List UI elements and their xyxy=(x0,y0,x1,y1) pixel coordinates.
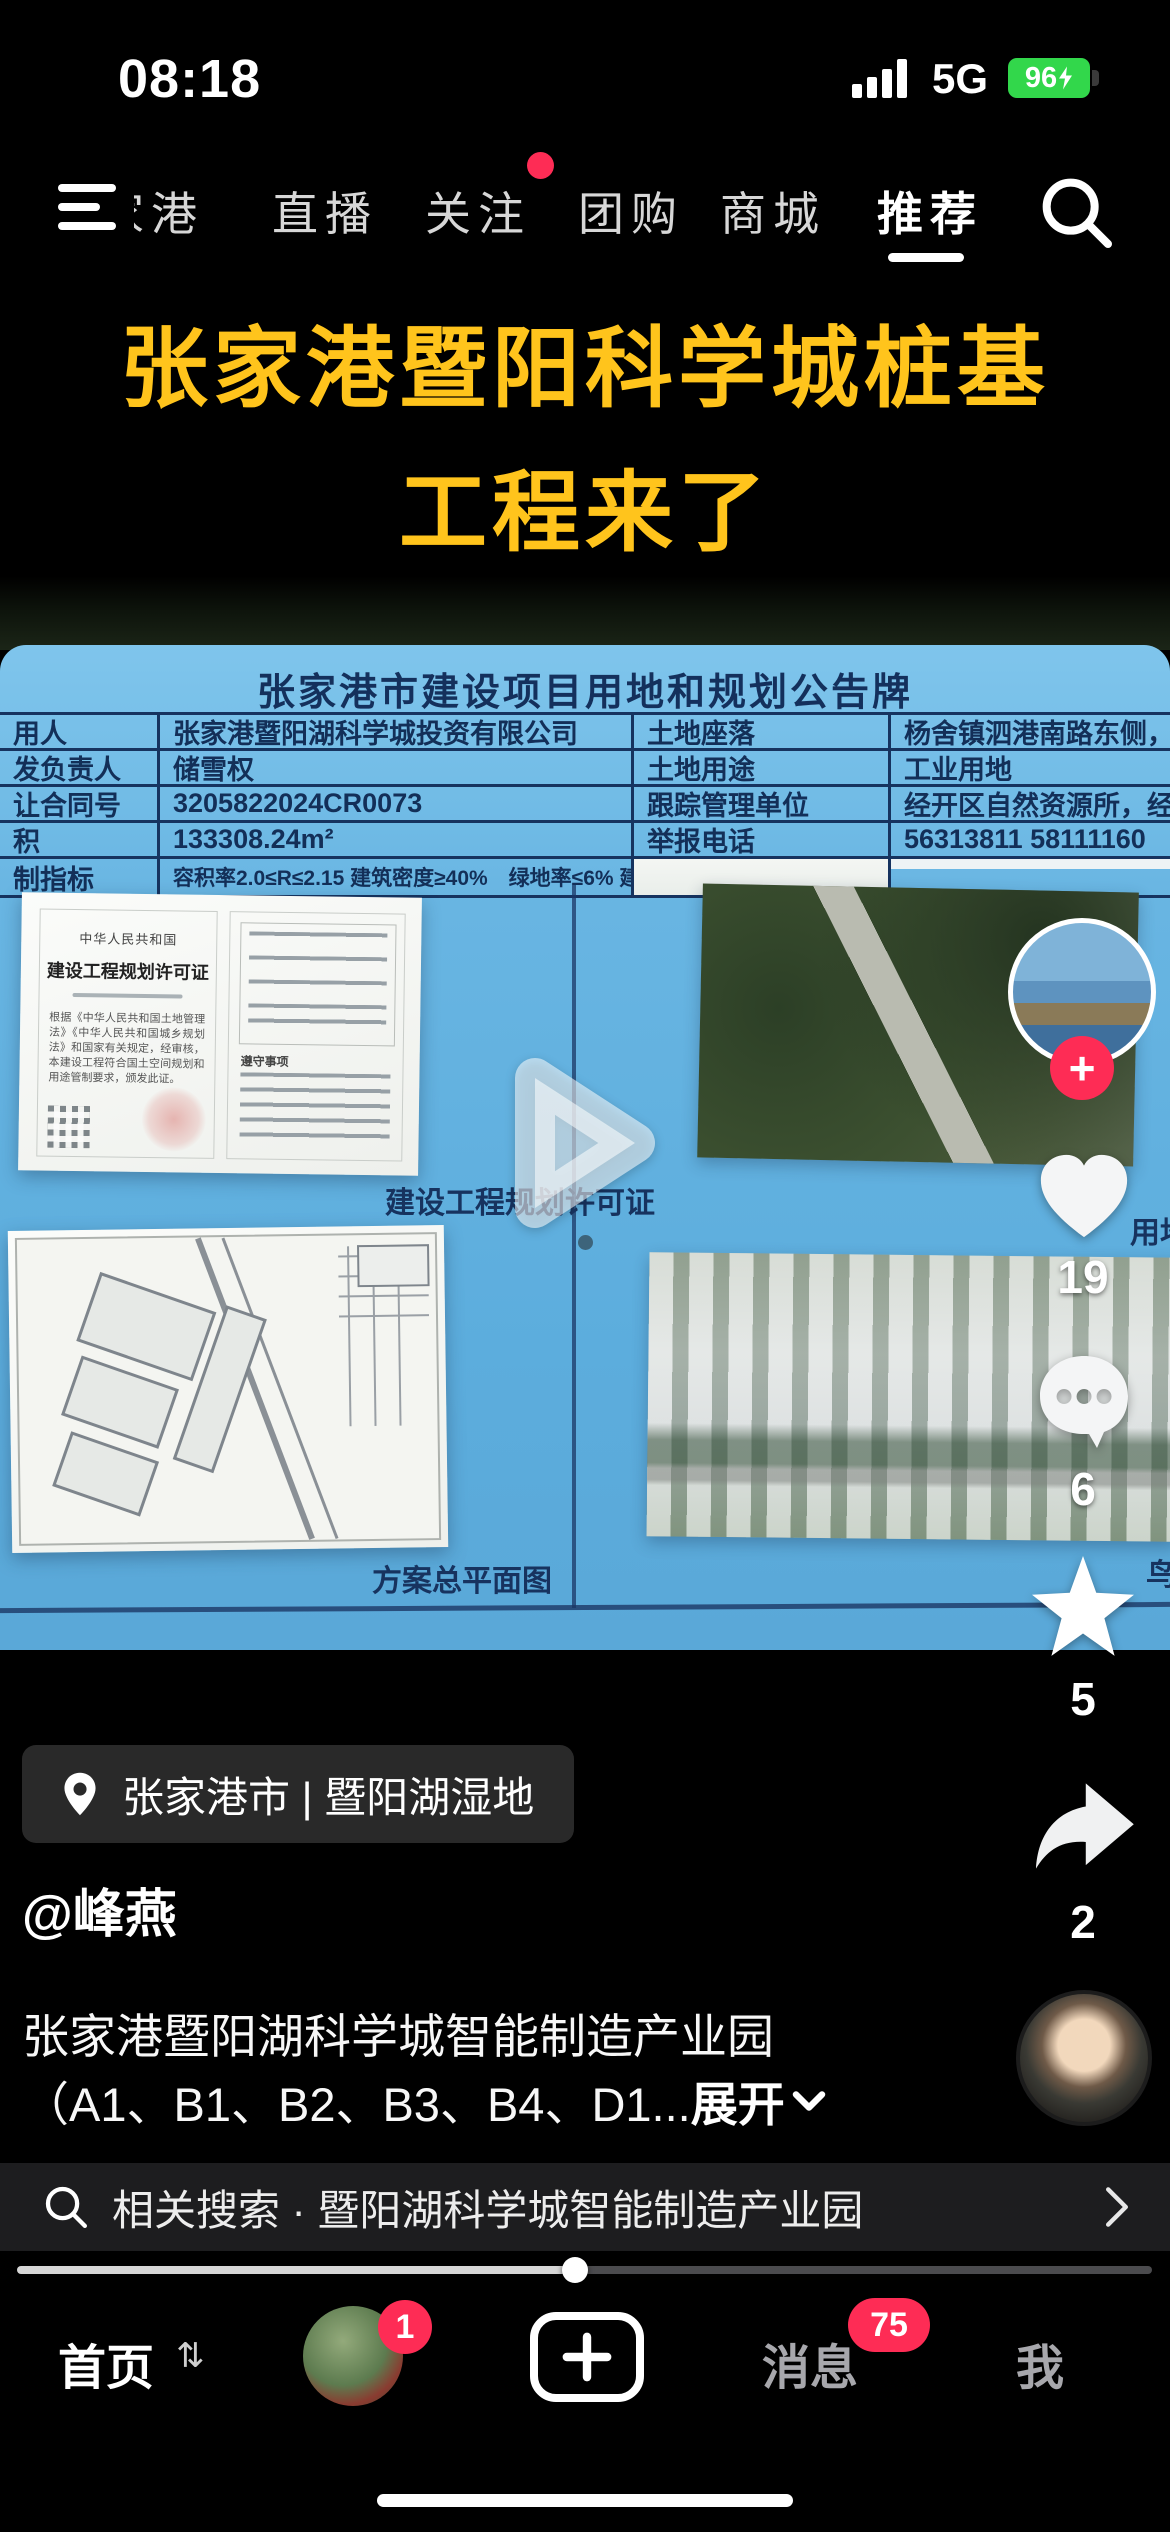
feed-switch-icon[interactable]: ⇅ xyxy=(176,2336,205,2376)
create-button[interactable] xyxy=(530,2312,644,2402)
tab-following[interactable]: 关注 xyxy=(425,178,531,244)
chevron-down-icon[interactable] xyxy=(791,2088,827,2114)
home-indicator[interactable] xyxy=(377,2494,793,2507)
qr-code xyxy=(47,1106,90,1149)
table-value: 133308.24m² xyxy=(160,823,634,859)
chevron-right-icon xyxy=(1102,2185,1132,2229)
nav-home[interactable]: 首页 xyxy=(58,2328,154,2398)
tab-city[interactable]: 家港 xyxy=(134,178,226,238)
location-pin-icon xyxy=(62,1769,98,1819)
permit-country-line: 中华人民共和国 xyxy=(40,927,216,948)
table-label: 制指标 xyxy=(0,859,160,895)
plus-icon xyxy=(538,2320,636,2394)
location-label: 张家港市 | 暨阳湖湿地 xyxy=(122,1764,534,1825)
table-label: 土地用途 xyxy=(634,751,891,787)
video-background xyxy=(0,576,1170,650)
progress-bar-remaining[interactable] xyxy=(575,2266,1152,2274)
table-value: 工业用地 xyxy=(891,751,1170,787)
video-description-line1: 张家港暨阳湖科学城智能制造产业园 xyxy=(22,1998,774,2067)
table-label: 发负责人 xyxy=(0,751,160,787)
nav-messages[interactable]: 消息 xyxy=(762,2328,858,2398)
video-overlay-title-line1: 张家港暨阳科学城桩基 xyxy=(0,298,1170,425)
table-value: 3205822024CR0073 xyxy=(160,787,634,823)
messages-badge: 75 xyxy=(848,2298,930,2352)
table-label: 积 xyxy=(0,823,160,859)
like-icon[interactable] xyxy=(1035,1150,1133,1242)
friend-badge: 1 xyxy=(378,2300,432,2354)
music-disc-avatar[interactable] xyxy=(1016,1990,1152,2126)
tab-recommend[interactable]: 推荐 xyxy=(877,178,983,244)
table-value: 56313811 58111160 xyxy=(891,823,1170,859)
board-info-table: 用人 张家港暨阳湖科学城投资有限公司 土地座落 杨舍镇泗港南路东侧，西湖苑 发负… xyxy=(0,712,1170,898)
board-title: 张家港市建设项目用地和规划公告牌 xyxy=(0,661,1170,716)
red-stamp xyxy=(141,1087,206,1152)
satellite-caption-partial: 用地 xyxy=(1130,1208,1170,1252)
progress-bar-played[interactable] xyxy=(17,2266,575,2274)
tab-live[interactable]: 直播 xyxy=(272,178,378,244)
favorite-count: 5 xyxy=(1028,1672,1138,1726)
board-divider-line xyxy=(572,885,576,1608)
play-button[interactable] xyxy=(505,1048,665,1238)
favorite-icon[interactable] xyxy=(1030,1556,1136,1658)
table-value: 经开区自然资源所，经开区 xyxy=(891,787,1170,823)
comment-icon[interactable] xyxy=(1035,1352,1133,1452)
comment-count: 6 xyxy=(1028,1462,1138,1516)
like-count: 19 xyxy=(1028,1250,1138,1304)
table-value: 杨舍镇泗港南路东侧，西湖苑 xyxy=(891,715,1170,751)
signal-strength-icon xyxy=(852,58,907,98)
progress-handle[interactable] xyxy=(562,2257,588,2283)
share-icon[interactable] xyxy=(1030,1778,1138,1874)
tab-group-buy[interactable]: 团购 xyxy=(578,178,684,244)
network-type: 5G xyxy=(932,55,988,103)
permit-notice-title: 遵守事项 xyxy=(241,1052,289,1070)
table-label: 土地座落 xyxy=(634,715,891,751)
site-plan-drawing xyxy=(8,1225,448,1553)
siteplan-caption: 方案总平面图 xyxy=(372,1556,552,1600)
username[interactable]: @峰燕 xyxy=(22,1872,177,1947)
video-overlay-title-line2: 工程来了 xyxy=(0,442,1170,569)
table-label: 让合同号 xyxy=(0,787,160,823)
table-label: 跟踪管理单位 xyxy=(634,787,891,823)
table-label: 用人 xyxy=(0,715,160,751)
related-search-bar[interactable]: 相关搜索 · 暨阳湖科学城智能制造产业园 xyxy=(0,2163,1170,2251)
table-value: 张家港暨阳湖科学城投资有限公司 xyxy=(160,715,634,751)
charging-bolt-icon xyxy=(1058,66,1073,90)
permit-title: 建设工程规划许可证 xyxy=(40,956,216,984)
menu-icon[interactable] xyxy=(58,184,116,230)
share-count: 2 xyxy=(1028,1895,1138,1949)
active-tab-underline xyxy=(888,253,964,262)
permit-body-text: 根据《中华人民共和国土地管理法》《中华人民共和国城乡规划法》和国家有关规定，经审… xyxy=(48,1011,205,1088)
tab-mall[interactable]: 商城 xyxy=(720,178,826,244)
permit-document-photo: 中华人民共和国 建设工程规划许可证 根据《中华人民共和国土地管理法》《中华人民共… xyxy=(18,892,422,1176)
location-tag[interactable]: 张家港市 | 暨阳湖湿地 xyxy=(22,1745,574,1843)
related-search-label: 相关搜索 · 暨阳湖科学城智能制造产业园 xyxy=(112,2177,863,2238)
render-caption-partial: 鸟 xyxy=(1146,1550,1170,1594)
board-bottom-edge xyxy=(0,1602,1170,1613)
battery-icon: 96 xyxy=(1008,58,1099,98)
douyin-app: 08:18 5G 96 家港 直播 关注 团购 商城 推荐 张家港暨阳科学城桩基… xyxy=(0,0,1170,2532)
battery-percent: 96 xyxy=(1025,62,1057,95)
description-text: （A1、B1、B2、B3、B4、D1... xyxy=(22,2066,691,2135)
expand-button[interactable]: 展开 xyxy=(691,2066,785,2135)
table-value: 容积率2.0≤R≤2.15 建筑密度≥40% 绿地率≤6% 建筑限高≥10米 xyxy=(160,859,634,895)
status-time: 08:18 xyxy=(118,48,261,110)
table-value: 储雪权 xyxy=(160,751,634,787)
follow-button[interactable]: + xyxy=(1050,1036,1114,1100)
search-icon[interactable] xyxy=(1036,172,1116,252)
following-notification-dot xyxy=(527,152,554,179)
table-label: 举报电话 xyxy=(634,823,891,859)
video-description-line2: （A1、B1、B2、B3、B4、D1...展开 xyxy=(22,2066,827,2135)
search-icon-small xyxy=(42,2183,90,2231)
nav-me[interactable]: 我 xyxy=(1016,2328,1064,2398)
